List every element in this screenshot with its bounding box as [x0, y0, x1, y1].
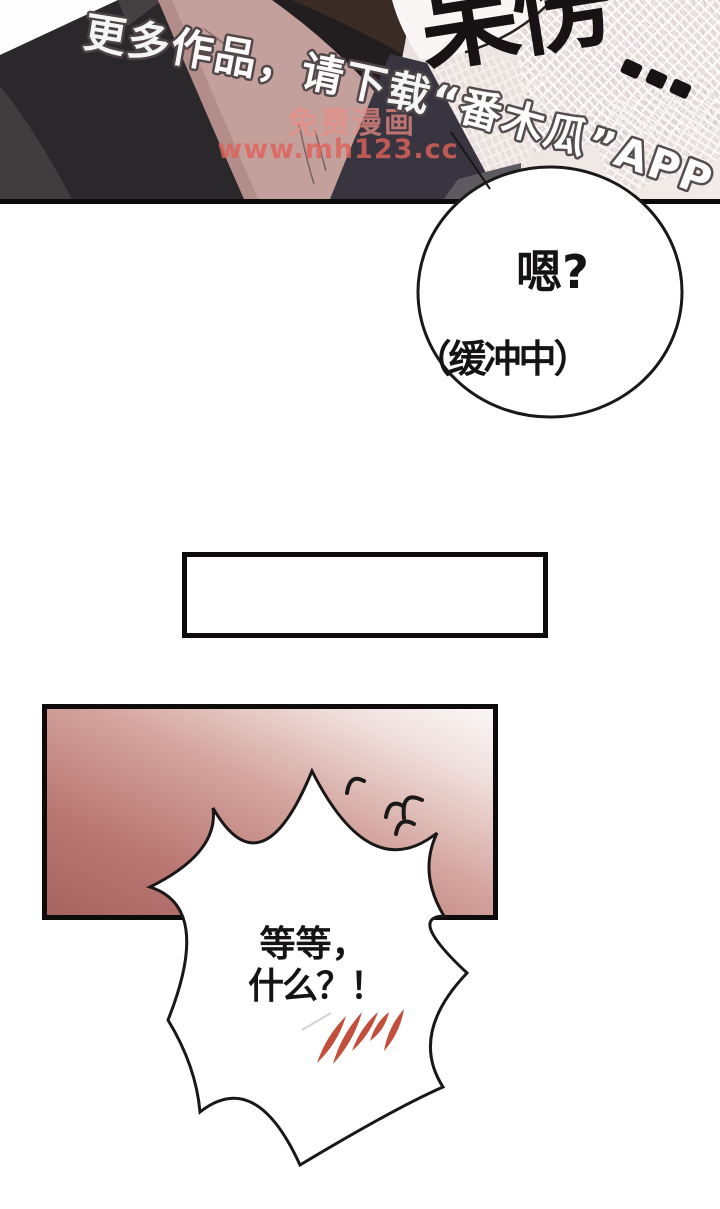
sfx-text: 呆愣: [410, 0, 617, 88]
surprise-tick-marks: [347, 779, 422, 834]
site-watermark-url: www.mh123.cc: [217, 134, 458, 165]
burst-bubble-line2: 什么？！: [206, 966, 426, 1007]
sfx-ellipsis: [620, 58, 693, 100]
burst-bubble-line1: 等等，: [226, 924, 401, 965]
round-bubble-line1: 嗯?: [465, 246, 640, 299]
round-bubble-line2: （缓冲中）: [385, 338, 617, 382]
comic-page: 免费漫画 www.mh123.cc 更多作品，请下载“番木瓜”APP。 呆愣: [0, 0, 720, 1209]
